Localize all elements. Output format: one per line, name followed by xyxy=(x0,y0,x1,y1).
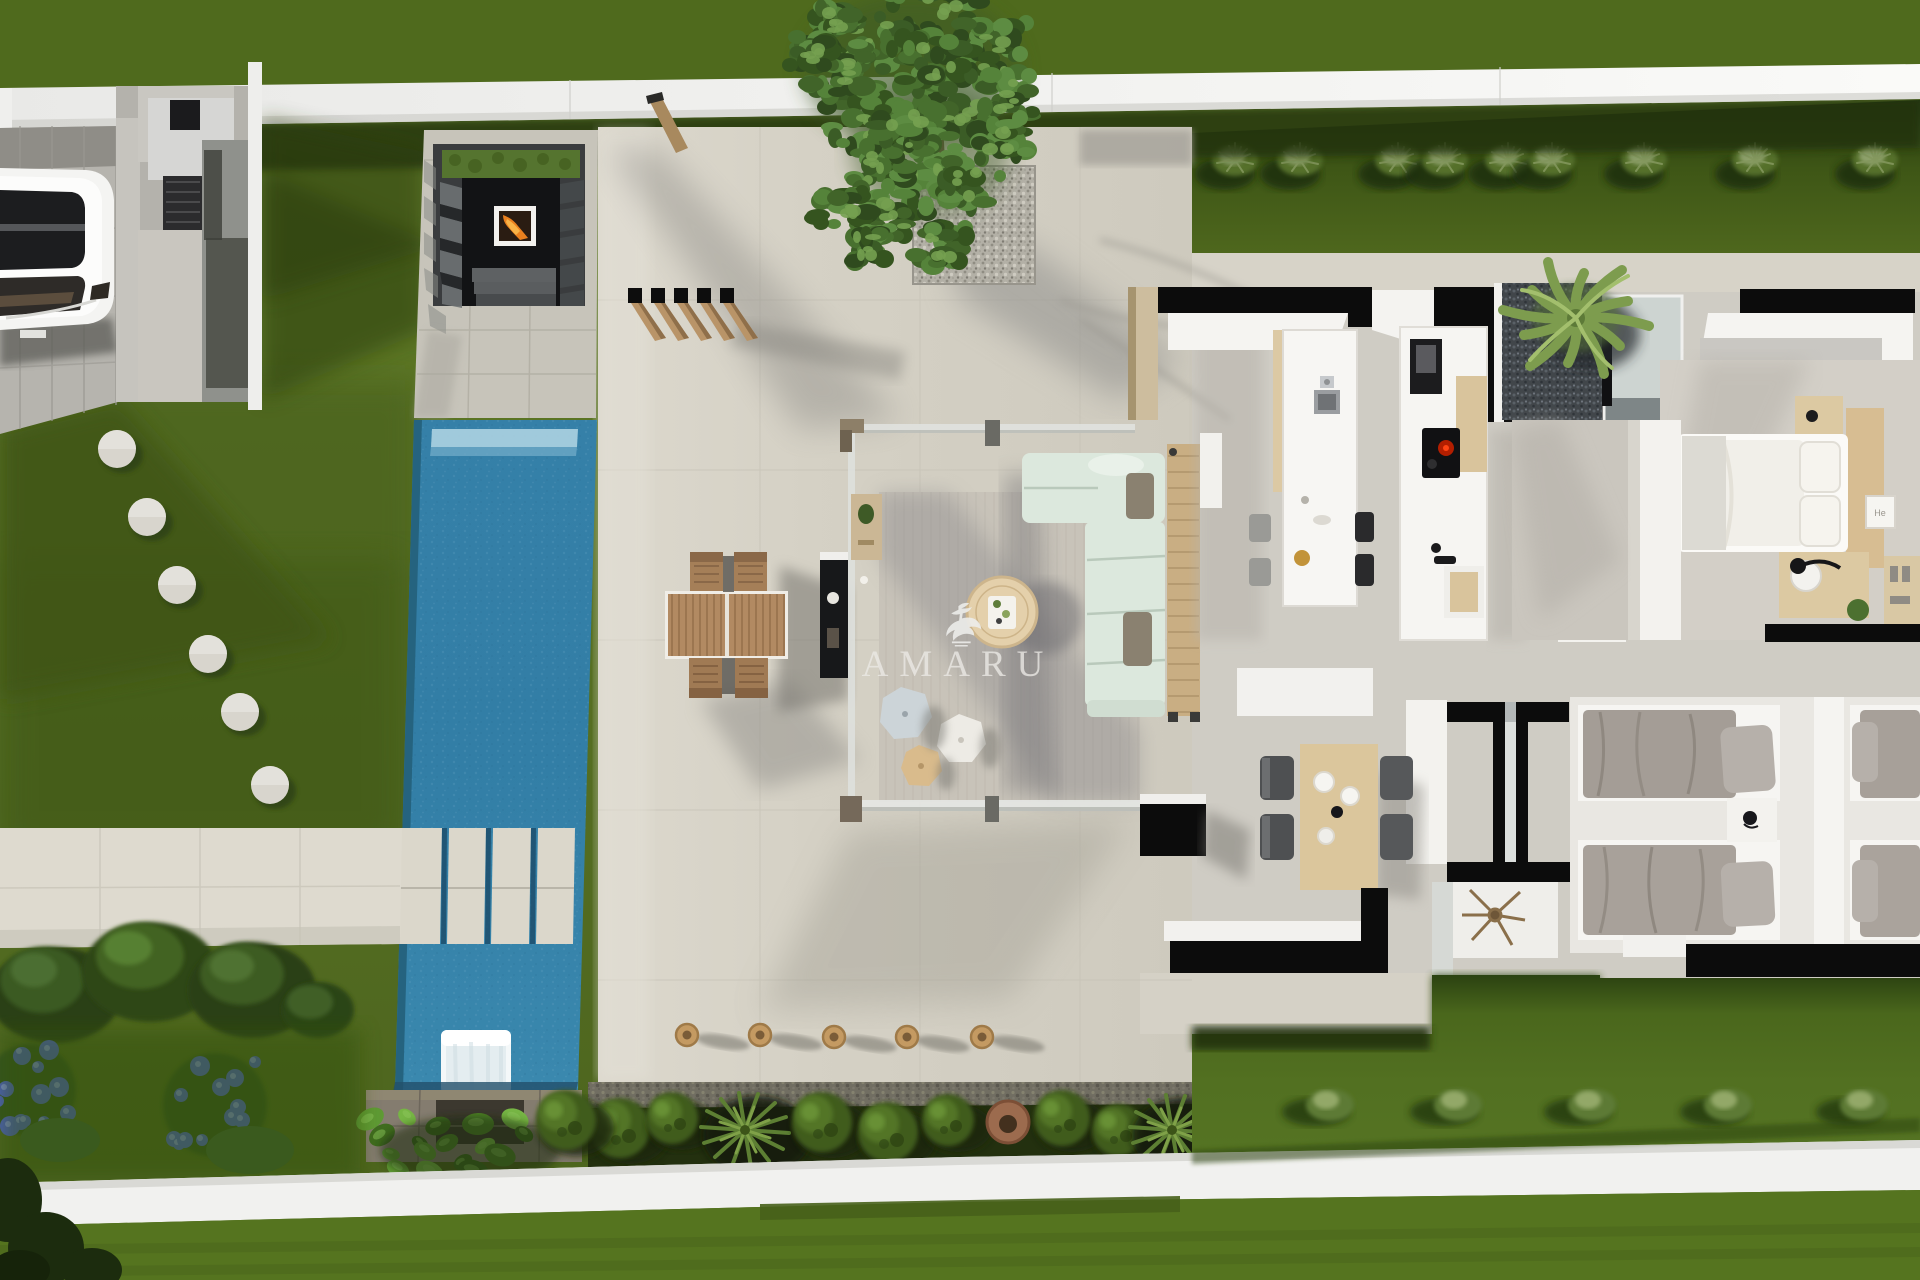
svg-text:He: He xyxy=(1874,508,1886,518)
svg-text:AMARU: AMARU xyxy=(862,644,1055,685)
